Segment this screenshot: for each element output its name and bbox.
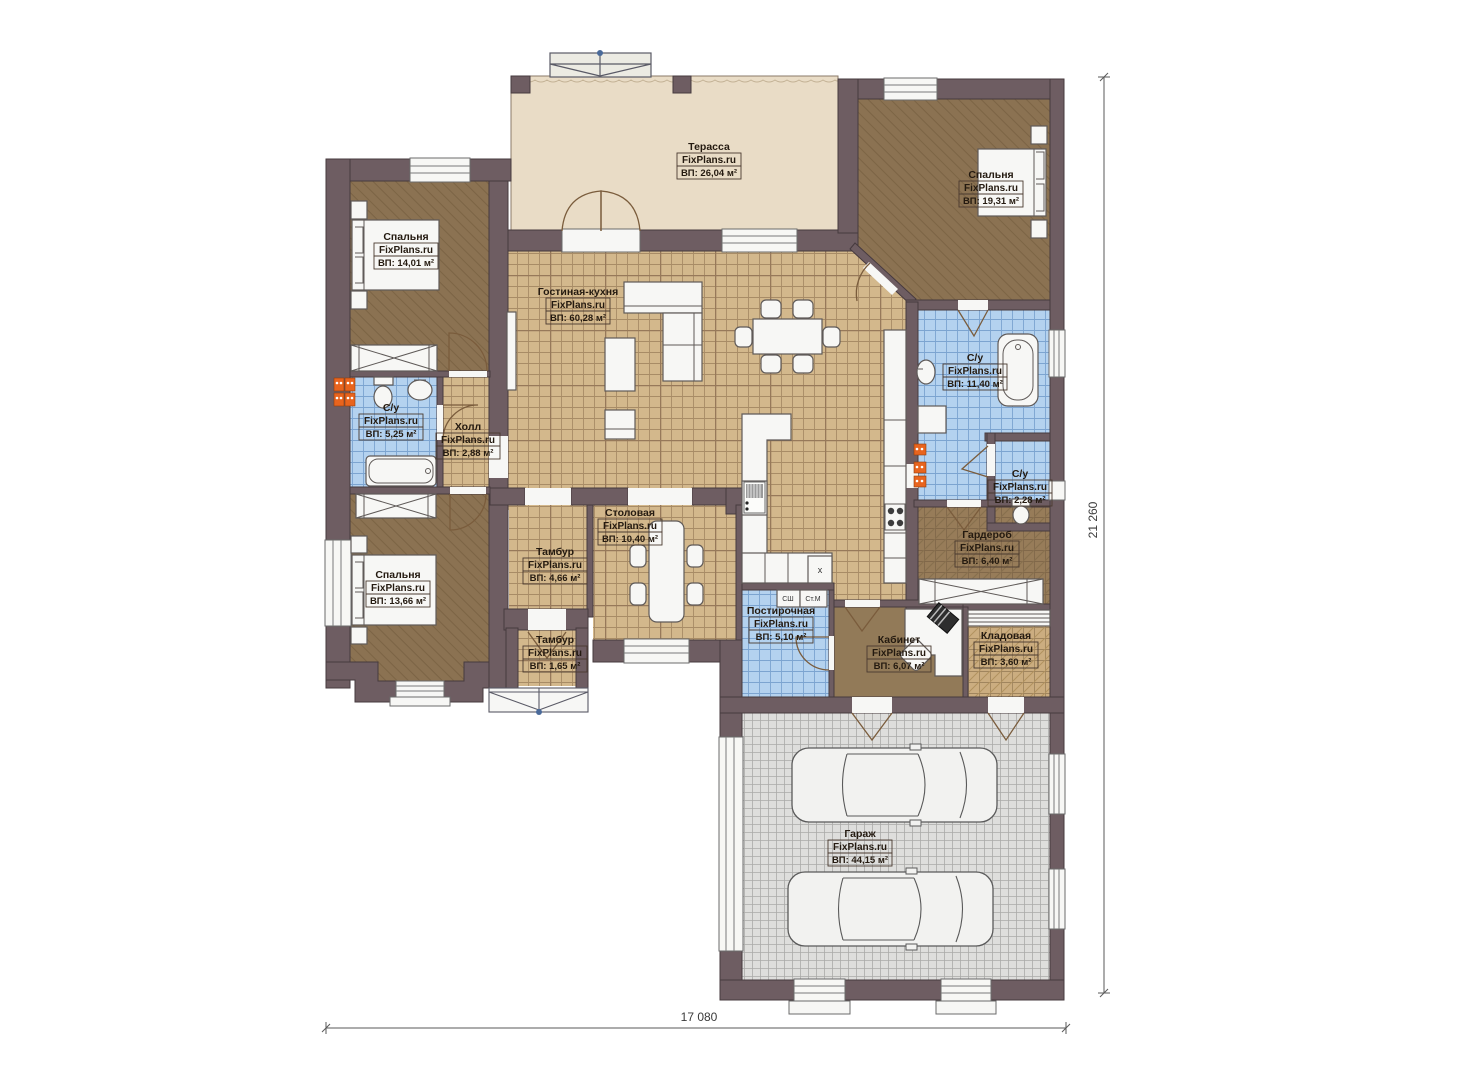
svg-text:Гардероб: Гардероб <box>962 529 1012 541</box>
svg-text:FixPlans.ru: FixPlans.ru <box>551 300 605 311</box>
svg-text:Кабинет: Кабинет <box>878 634 921 646</box>
svg-text:ВП: 19,31 м²: ВП: 19,31 м² <box>963 196 1019 207</box>
svg-text:Столовая: Столовая <box>605 507 655 519</box>
svg-text:FixPlans.ru: FixPlans.ru <box>603 521 657 532</box>
svg-text:FixPlans.ru: FixPlans.ru <box>833 842 887 853</box>
svg-text:FixPlans.ru: FixPlans.ru <box>872 648 926 659</box>
svg-text:FixPlans.ru: FixPlans.ru <box>371 583 425 594</box>
svg-text:ВП: 6,40 м²: ВП: 6,40 м² <box>962 556 1013 567</box>
svg-text:ВП: 10,40 м²: ВП: 10,40 м² <box>602 534 658 545</box>
svg-text:С/у: С/у <box>1012 468 1029 480</box>
svg-text:FixPlans.ru: FixPlans.ru <box>441 435 495 446</box>
svg-text:Гараж: Гараж <box>844 828 876 840</box>
svg-text:ВП: 3,60 м²: ВП: 3,60 м² <box>981 657 1032 668</box>
svg-text:СШ: СШ <box>782 596 793 603</box>
svg-text:Тамбур: Тамбур <box>536 634 574 646</box>
svg-text:x: x <box>818 565 823 575</box>
svg-text:С/у: С/у <box>383 402 400 414</box>
svg-text:17 080: 17 080 <box>681 1010 718 1024</box>
svg-text:Ст.М: Ст.М <box>805 596 820 603</box>
svg-text:FixPlans.ru: FixPlans.ru <box>528 648 582 659</box>
svg-text:ВП: 1,65 м²: ВП: 1,65 м² <box>530 661 581 672</box>
svg-text:FixPlans.ru: FixPlans.ru <box>948 366 1002 377</box>
svg-text:FixPlans.ru: FixPlans.ru <box>960 543 1014 554</box>
svg-text:Терасса: Терасса <box>688 141 730 153</box>
svg-text:С/у: С/у <box>967 352 984 364</box>
svg-text:Кладовая: Кладовая <box>981 630 1031 642</box>
svg-text:FixPlans.ru: FixPlans.ru <box>964 183 1018 194</box>
svg-text:ВП: 5,10 м²: ВП: 5,10 м² <box>756 632 807 643</box>
svg-text:ВП: 26,04 м²: ВП: 26,04 м² <box>681 168 737 179</box>
svg-text:ВП: 14,01 м²: ВП: 14,01 м² <box>378 258 434 269</box>
svg-text:FixPlans.ru: FixPlans.ru <box>364 416 418 427</box>
svg-text:ВП: 13,66 м²: ВП: 13,66 м² <box>370 596 426 607</box>
svg-text:ВП: 2,88 м²: ВП: 2,88 м² <box>443 448 494 459</box>
svg-text:Тамбур: Тамбур <box>536 546 574 558</box>
svg-text:FixPlans.ru: FixPlans.ru <box>379 245 433 256</box>
svg-text:Спальня: Спальня <box>383 231 428 243</box>
svg-text:ВП: 60,28 м²: ВП: 60,28 м² <box>550 313 606 324</box>
svg-text:FixPlans.ru: FixPlans.ru <box>528 560 582 571</box>
svg-text:FixPlans.ru: FixPlans.ru <box>754 619 808 630</box>
svg-text:ВП: 2,28 м²: ВП: 2,28 м² <box>995 495 1046 506</box>
svg-text:Постирочная: Постирочная <box>747 605 815 617</box>
svg-text:Спальня: Спальня <box>375 569 420 581</box>
svg-text:ВП: 5,25 м²: ВП: 5,25 м² <box>366 429 417 440</box>
svg-text:FixPlans.ru: FixPlans.ru <box>993 482 1047 493</box>
svg-text:ВП: 44,15 м²: ВП: 44,15 м² <box>832 855 888 866</box>
svg-text:FixPlans.ru: FixPlans.ru <box>682 155 736 166</box>
svg-text:Гостиная-кухня: Гостиная-кухня <box>538 286 618 298</box>
svg-text:21 260: 21 260 <box>1086 501 1100 538</box>
svg-text:ВП: 4,66 м²: ВП: 4,66 м² <box>530 573 581 584</box>
svg-text:ВП: 11,40 м²: ВП: 11,40 м² <box>947 379 1003 390</box>
svg-text:Спальня: Спальня <box>968 169 1013 181</box>
svg-text:Холл: Холл <box>455 421 481 433</box>
svg-text:FixPlans.ru: FixPlans.ru <box>979 644 1033 655</box>
svg-text:ВП: 6,07 м²: ВП: 6,07 м² <box>874 661 925 672</box>
